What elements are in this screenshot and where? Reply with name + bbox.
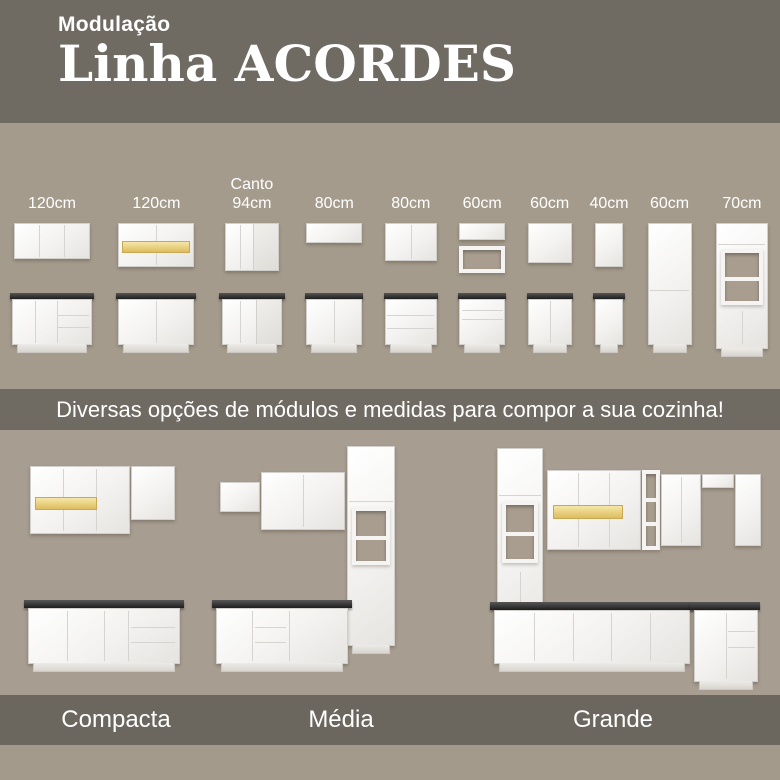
wall-cabinet-illustration (528, 223, 572, 263)
module-illustration (114, 223, 198, 389)
module-size-label: 60cm (458, 143, 506, 213)
door-divider (64, 225, 65, 257)
open-niche (721, 249, 763, 305)
module-column-60cm-b: 60cm (527, 143, 573, 389)
base-cabinet-illustration (595, 299, 623, 345)
module-illustration (593, 223, 625, 389)
shelf (725, 277, 759, 281)
module-size-text: 70cm (722, 194, 761, 213)
module-illustration (646, 223, 694, 389)
tall-oven-tower-illustration (716, 223, 768, 349)
module-column-80cm-b: 80cm (384, 143, 438, 389)
base-cabinet-illustration (528, 299, 572, 345)
cabinet-side-panel (256, 300, 281, 344)
open-niche-cabinet (459, 246, 505, 273)
module-illustration (458, 223, 506, 389)
wall-cabinet-illustration (459, 223, 505, 240)
countertop (212, 600, 352, 608)
plinth (17, 344, 87, 353)
module-size-text: 80cm (315, 194, 354, 213)
drawer-divider (131, 627, 175, 628)
door-divider (742, 311, 743, 344)
module-illustration (219, 223, 285, 389)
door-divider (128, 611, 129, 662)
door-divider (349, 501, 392, 502)
plinth (499, 663, 685, 672)
plinth (33, 663, 175, 672)
base-cabinet-return-illustration (694, 610, 758, 682)
module-size-label: 40cm (593, 143, 625, 213)
module-size-prefix: Canto (231, 175, 274, 194)
door-divider (240, 225, 241, 268)
plinth (221, 663, 343, 672)
corner-base-cabinet-illustration (222, 299, 282, 345)
door-divider (156, 301, 157, 342)
module-size-label: 120cm (114, 143, 198, 213)
shelf (506, 532, 534, 536)
led-glass-strip (122, 241, 190, 253)
door-divider (39, 225, 40, 257)
drawer-divider (255, 642, 286, 643)
page-title: Linha ACORDES (58, 38, 780, 90)
led-glass-strip (553, 505, 623, 519)
kitchen-label-grande: Grande (573, 706, 653, 734)
led-glass-strip (35, 497, 97, 510)
drawer-divider (58, 327, 88, 328)
base-cabinet-illustration (306, 299, 362, 345)
module-column-60cm-tall: 60cm (646, 143, 694, 389)
corner-open-shelves (642, 470, 660, 550)
door-divider (718, 244, 765, 245)
drawer-divider (255, 627, 286, 628)
door-divider (573, 613, 574, 662)
module-size-label: 120cm (10, 143, 94, 213)
plinth (352, 645, 390, 654)
plinth (600, 344, 618, 353)
module-size-text: 60cm (463, 194, 502, 213)
drawer-divider (462, 319, 503, 320)
hood-top-cabinet-illustration (702, 474, 734, 488)
base-cabinet-illustration (494, 610, 690, 664)
drawer-divider (728, 631, 755, 632)
module-size-text: 60cm (530, 194, 569, 213)
module-illustration (384, 223, 438, 389)
kitchen-labels-band: Compacta Média Grande (0, 695, 780, 745)
drawer-divider (131, 642, 175, 643)
banner: Diversas opções de módulos e medidas par… (0, 389, 780, 430)
door-divider (240, 301, 241, 342)
module-size-label: 80cm (305, 143, 363, 213)
module-column-120cm-a: 120cm (10, 143, 94, 389)
door-divider (499, 495, 540, 496)
drawer-divider (58, 315, 88, 316)
module-column-70cm-tall: 70cm (714, 143, 770, 389)
countertop (690, 602, 760, 610)
module-column-120cm-b: 120cm (114, 143, 198, 389)
shelf (356, 536, 386, 540)
base-cabinet-illustration (28, 608, 180, 664)
module-size-label: 80cm (384, 143, 438, 213)
drawer-divider (462, 310, 503, 311)
plinth (311, 344, 357, 353)
base-cabinet-illustration (118, 299, 194, 345)
modules-section: 120cm 120cm (0, 123, 780, 389)
footer-strip (0, 745, 780, 780)
door-divider (252, 611, 253, 662)
plinth (533, 344, 567, 353)
countertop (24, 600, 184, 608)
module-column-40cm: 40cm (593, 143, 625, 389)
wall-cabinet-illustration (220, 482, 260, 512)
wall-cabinet-led-illustration (547, 470, 641, 550)
modules-grid: 120cm 120cm (10, 143, 770, 389)
module-size-label: 60cm (527, 143, 573, 213)
door-divider (726, 613, 727, 679)
module-size-label: 70cm (714, 143, 770, 213)
shelf (646, 498, 656, 502)
tall-shelf-tower-illustration (347, 446, 395, 646)
tall-cabinet-illustration (648, 223, 692, 345)
door-divider (534, 613, 535, 662)
module-size-text: 40cm (590, 194, 629, 213)
kitchens-illustrations (0, 430, 780, 695)
door-divider (334, 301, 335, 342)
door-divider (611, 613, 612, 662)
door-divider (289, 611, 290, 662)
base-cabinet-illustration (216, 608, 348, 664)
door-divider (57, 301, 58, 342)
kitchen-label-media: Média (308, 706, 373, 734)
wall-cabinet-led-illustration (118, 223, 194, 267)
plinth (227, 344, 277, 353)
module-column-canto-94cm: Canto 94cm (219, 143, 285, 389)
plinth (123, 344, 189, 353)
module-illustration (714, 223, 770, 389)
door-divider (67, 611, 68, 662)
drawer-divider (387, 328, 434, 329)
module-illustration (10, 223, 94, 389)
door-divider (650, 613, 651, 662)
plinth (721, 348, 763, 357)
door-divider (681, 477, 682, 543)
wall-cabinet-illustration (306, 223, 362, 243)
module-size-label: Canto 94cm (219, 143, 285, 213)
module-size-text: 60cm (650, 194, 689, 213)
wall-cabinet-illustration (14, 223, 90, 259)
door-divider (550, 301, 551, 342)
module-illustration (305, 223, 363, 389)
door-divider (411, 225, 412, 259)
drawer-divider (387, 315, 434, 316)
plinth (699, 681, 753, 690)
module-column-60cm-a: 60cm (458, 143, 506, 389)
module-size-text: 120cm (28, 194, 76, 213)
wall-cabinet-illustration (131, 466, 175, 520)
module-illustration (527, 223, 573, 389)
base-cabinet-illustration (12, 299, 92, 345)
corner-wall-cabinet-illustration (225, 223, 279, 271)
plinth (390, 344, 432, 353)
cabinet-side-panel (253, 224, 277, 270)
wall-cabinet-led-illustration (30, 466, 130, 534)
door-divider (35, 301, 36, 342)
module-size-text: 94cm (232, 194, 271, 213)
wall-cabinet-illustration (661, 474, 701, 546)
header: Modulação Linha ACORDES (0, 0, 780, 123)
drawer-divider (728, 647, 755, 648)
kitchen-label-compacta: Compacta (61, 706, 170, 734)
base-cabinet-illustration (385, 299, 437, 345)
open-niche (502, 501, 538, 563)
wall-cabinet-illustration (735, 474, 761, 546)
plinth (653, 344, 687, 353)
shelf (646, 522, 656, 526)
wall-cabinet-illustration (385, 223, 437, 261)
module-size-text: 80cm (391, 194, 430, 213)
plinth (464, 344, 500, 353)
door-divider (650, 290, 690, 291)
door-divider (303, 475, 304, 528)
banner-text: Diversas opções de módulos e medidas par… (56, 397, 724, 423)
countertop (490, 602, 694, 610)
open-niche (352, 507, 390, 565)
wall-cabinet-illustration (261, 472, 345, 530)
base-cabinet-illustration (459, 299, 505, 345)
module-size-text: 120cm (132, 194, 180, 213)
wall-cabinet-illustration (595, 223, 623, 267)
module-column-80cm-a: 80cm (305, 143, 363, 389)
door-divider (104, 611, 105, 662)
module-size-label: 60cm (646, 143, 694, 213)
